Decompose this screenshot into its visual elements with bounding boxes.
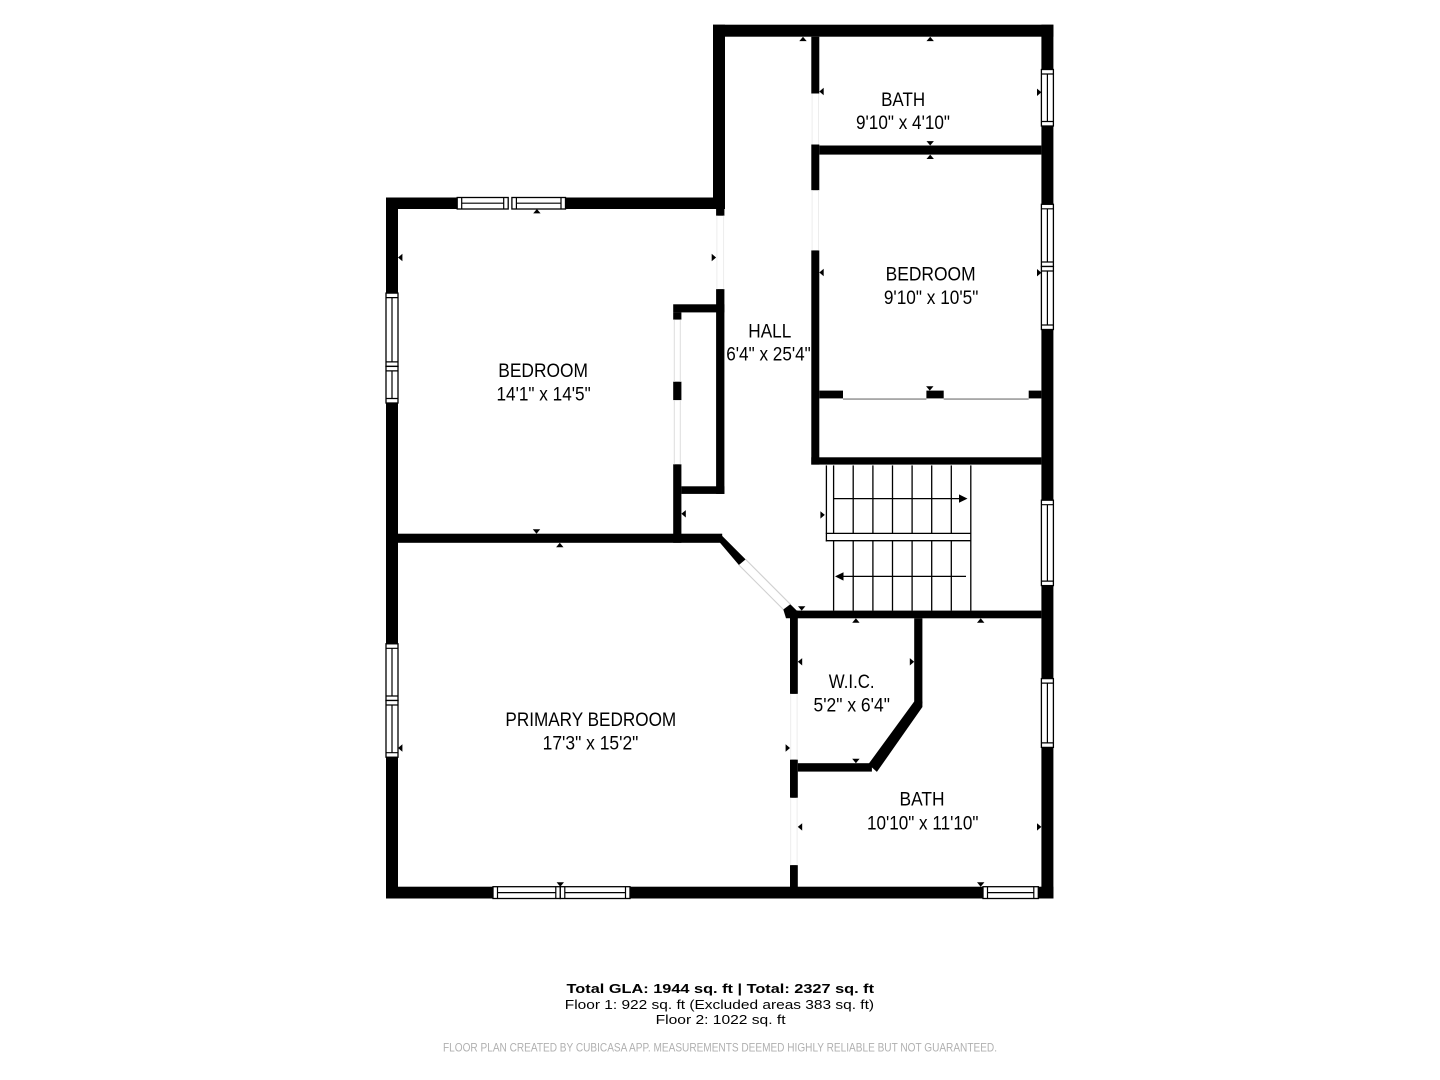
svg-text:FLOOR PLAN CREATED BY CUBICASA: FLOOR PLAN CREATED BY CUBICASA APP. MEAS…	[443, 1040, 997, 1054]
svg-text:W.I.C.: W.I.C.	[829, 672, 875, 693]
svg-text:9'10" x 4'10": 9'10" x 4'10"	[856, 113, 950, 134]
svg-text:BATH: BATH	[881, 90, 925, 111]
svg-text:Floor 2: 1022 sq. ft: Floor 2: 1022 sq. ft	[656, 1012, 786, 1027]
svg-text:14'1" x 14'5": 14'1" x 14'5"	[497, 384, 591, 405]
svg-text:Total GLA: 1944 sq. ft | Total: Total GLA: 1944 sq. ft | Total: 2327 sq.…	[567, 981, 875, 996]
svg-text:10'10" x 11'10": 10'10" x 11'10"	[867, 813, 979, 834]
svg-text:5'2" x 6'4": 5'2" x 6'4"	[814, 696, 890, 717]
svg-text:6'4" x 25'4": 6'4" x 25'4"	[726, 345, 811, 366]
svg-text:9'10" x 10'5": 9'10" x 10'5"	[884, 288, 979, 309]
svg-text:Floor 1: 922 sq. ft (Excluded: Floor 1: 922 sq. ft (Excluded areas 383 …	[565, 997, 874, 1012]
svg-text:HALL: HALL	[748, 322, 791, 343]
svg-text:BEDROOM: BEDROOM	[498, 361, 588, 382]
svg-text:17'3" x 15'2": 17'3" x 15'2"	[543, 734, 639, 755]
svg-text:BEDROOM: BEDROOM	[886, 264, 976, 285]
svg-text:PRIMARY BEDROOM: PRIMARY BEDROOM	[505, 710, 676, 731]
svg-text:BATH: BATH	[900, 790, 945, 811]
